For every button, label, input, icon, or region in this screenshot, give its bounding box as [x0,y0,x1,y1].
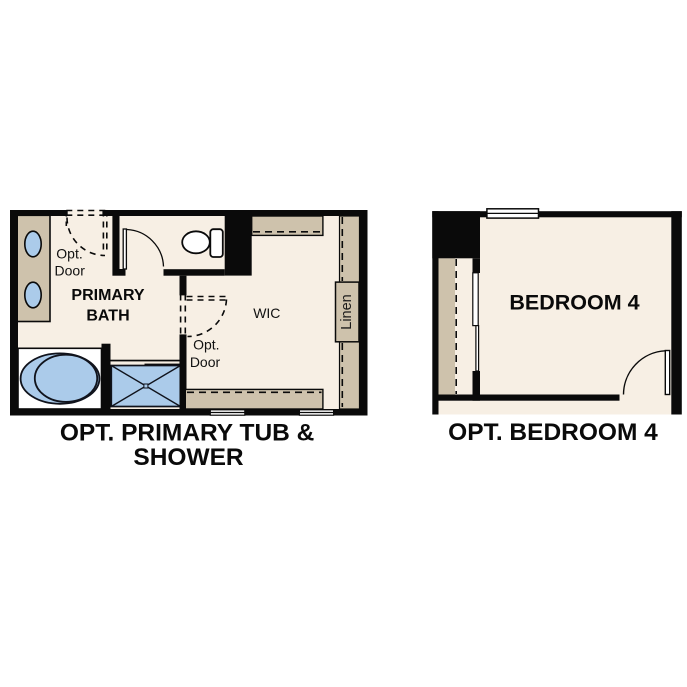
svg-text:WIC: WIC [253,305,280,321]
svg-text:PRIMARY: PRIMARY [71,287,145,304]
svg-text:OPT. BEDROOM 4: OPT. BEDROOM 4 [448,419,658,446]
svg-text:Linen: Linen [339,294,355,329]
svg-text:Opt.: Opt. [193,336,219,352]
svg-text:Door: Door [190,354,221,370]
svg-text:Opt.: Opt. [56,245,82,261]
svg-text:BEDROOM 4: BEDROOM 4 [509,291,639,315]
svg-text:BATH: BATH [86,308,129,325]
svg-text:Door: Door [55,263,86,279]
svg-text:OPT. PRIMARY TUB &: OPT. PRIMARY TUB & [60,420,315,447]
svg-text:SHOWER: SHOWER [133,444,244,471]
